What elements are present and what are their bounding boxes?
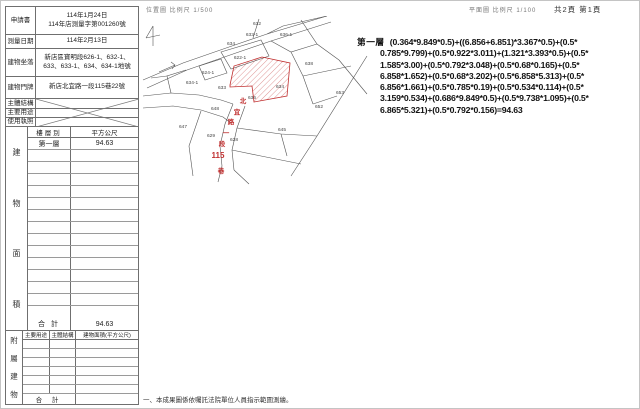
annex-empty-row (23, 376, 138, 385)
annex-header-row: 主要用途 主體結構 建物面積(平方公尺) (23, 331, 138, 340)
area-total-value: 94.63 (71, 318, 138, 330)
parcel-number-label: 647 (179, 124, 187, 130)
street-name-label: 路 (228, 117, 235, 126)
survey-date-value: 114年2月13日 (36, 35, 138, 48)
row-main-structure: 主體結構 (6, 99, 138, 109)
street-name-label: 115 (212, 151, 225, 160)
annex-building-section: 附屬建物 主要用途 主體結構 建物面積(平方公尺) 合 計 (6, 331, 138, 404)
application-label: 申請書 (6, 7, 36, 34)
parcel-number-label: 624-1 (202, 70, 215, 76)
building-location-label: 建物坐落 (6, 49, 36, 76)
row-building-location: 建物坐落 新店區寶明段626-1、632-1、633、633-1、634、634… (6, 49, 138, 77)
annex-use-header: 主要用途 (23, 331, 50, 339)
parcel-number-label: 632 (253, 21, 261, 27)
area-total-row: 合 計 94.63 (28, 318, 138, 330)
area-empty-row (28, 234, 138, 246)
main-use-value (36, 109, 138, 117)
area-empty-row (28, 186, 138, 198)
area-empty-row (28, 306, 138, 318)
area-row-first-floor: 第一層 94.63 (28, 138, 138, 150)
street-name-label: 段 (219, 139, 226, 148)
parcel-number-label: 622-1 (234, 55, 247, 61)
main-use-label: 主要用途 (6, 109, 36, 117)
area-empty-row (28, 270, 138, 282)
parcel-number-label: 652 (315, 104, 323, 110)
annex-empty-row (23, 349, 138, 358)
area-total-label: 合 計 (28, 318, 71, 330)
floor-column-header: 樓層別 (28, 127, 71, 137)
calc-line: 0.785*9.799)+(0.5*0.922*3.011)+(1.321*3.… (357, 48, 640, 59)
row-use-license: 使用執照 (6, 118, 138, 127)
calc-line: 6.856*1.661)+(0.5*0.785*0.19)+(0.5*0.534… (357, 82, 640, 93)
building-area-table: 樓層別 平方公尺 第一層 94.63 合 計 94.63 (28, 127, 138, 330)
annex-vertical-label: 附屬建物 (6, 331, 23, 404)
parcel-number-label: 636 (248, 95, 256, 101)
row-building-address: 建物門牌 新店北宜路一段115巷22號 (6, 77, 138, 99)
annex-area-header: 建物面積(平方公尺) (76, 331, 138, 339)
calc-line: 6.865*5.321)+(0.5*0.792*0.156)=94.63 (357, 105, 640, 116)
main-structure-label: 主體結構 (6, 99, 36, 108)
survey-date-label: 測量日期 (6, 35, 36, 48)
application-date: 114年1月24日 (67, 12, 108, 21)
calc-line: 3.159*0.534)+(0.686*9.849*0.5)+(0.5*9.73… (357, 93, 640, 104)
parcel-number-label: 645 (278, 127, 286, 133)
parcel-number-label: 648 (211, 106, 219, 112)
use-license-value (36, 118, 138, 126)
survey-result-document: 申請書 114年1月24日 114年店測量字第001260號 測量日期 114年… (0, 0, 640, 409)
calc-line: 第一層 (0.364*9.849*0.5)+((6.856+6.851)*3.3… (357, 37, 640, 48)
area-empty-row (28, 174, 138, 186)
annex-empty-rows (23, 340, 138, 394)
application-value: 114年1月24日 114年店測量字第001260號 (36, 7, 138, 34)
area-empty-row (28, 210, 138, 222)
parcel-number-label: 638 (305, 61, 313, 67)
application-number: 114年店測量字第001260號 (48, 21, 126, 30)
street-name-label: 宜 (234, 107, 241, 116)
building-area-vertical-label: 建物面積 (6, 127, 28, 330)
area-empty-row (28, 162, 138, 174)
first-floor-label: 第一層 (28, 138, 71, 149)
street-name-label: 北 (240, 96, 247, 105)
building-footprint-hatched (230, 57, 290, 102)
footnote: 一、本成果圖係依囑託法院單位人員指示範圍測繪。 (143, 394, 293, 404)
building-area-section: 建物面積 樓層別 平方公尺 第一層 94.63 合 計 94.63 (6, 127, 138, 331)
building-location-value: 新店區寶明段626-1、632-1、633、633-1、634、634-1地號 (36, 49, 138, 76)
main-structure-value (36, 99, 138, 108)
north-arrow-icon (146, 26, 160, 46)
area-empty-row (28, 282, 138, 294)
area-empty-row (28, 246, 138, 258)
street-name-label: 一 (223, 130, 230, 137)
street-name-label: 巷 (217, 166, 225, 175)
annex-structure-header: 主體結構 (50, 331, 76, 339)
floor-plan-scale: 平面圖 比例尺 1/100 (469, 5, 536, 14)
calc-line: 1.585*3.00)+(0.5*0.792*3.048)+(0.5*0.68*… (357, 60, 640, 71)
calc-line: 6.858*1.652)+(0.5*0.68*3.202)+(0.5*6.858… (357, 71, 640, 82)
annex-empty-row (23, 367, 138, 376)
annex-total-row: 合 計 (23, 394, 138, 404)
row-survey-date: 測量日期 114年2月13日 (6, 35, 138, 49)
parcel-number-label: 633-1 (246, 32, 259, 38)
building-address-label: 建物門牌 (6, 77, 36, 98)
location-map-container: 632636-1633-1634622-1638624-1634-1633634… (141, 16, 371, 188)
area-empty-rows (28, 150, 138, 318)
location-map-scale: 位置圖 比例尺 1/500 (146, 5, 213, 14)
building-address-value: 新店北宜路一段115巷22號 (36, 77, 138, 98)
annex-empty-row (23, 385, 138, 394)
parcel-number-label: 653 (336, 90, 344, 96)
use-license-label: 使用執照 (6, 118, 36, 126)
area-empty-row (28, 150, 138, 162)
form-table: 申請書 114年1月24日 114年店測量字第001260號 測量日期 114年… (5, 6, 139, 405)
parcel-number-label: 634-1 (186, 80, 199, 86)
annex-empty-row (23, 358, 138, 367)
row-main-use: 主要用途 (6, 109, 138, 118)
page-indicator: 共2頁 第1頁 (554, 4, 601, 15)
sqm-column-header: 平方公尺 (71, 127, 138, 137)
parcel-number-label: 629 (207, 133, 215, 139)
area-empty-row (28, 198, 138, 210)
annex-total-value (76, 394, 138, 404)
parcel-number-label: 628 (230, 137, 238, 143)
area-calculation-block: 第一層 (0.364*9.849*0.5)+((6.856+6.851)*3.3… (357, 37, 640, 116)
parcel-number-label: 633 (218, 85, 226, 91)
parcel-number-label: 634 (276, 84, 284, 90)
parcel-number-label: 636-1 (280, 32, 293, 38)
area-empty-row (28, 222, 138, 234)
location-map: 632636-1633-1634622-1638624-1634-1633634… (141, 16, 371, 188)
annex-empty-row (23, 340, 138, 349)
row-application: 申請書 114年1月24日 114年店測量字第001260號 (6, 7, 138, 35)
area-empty-row (28, 258, 138, 270)
calc-lines: 第一層 (0.364*9.849*0.5)+((6.856+6.851)*3.3… (357, 37, 640, 116)
parcel-number-label: 634 (227, 41, 235, 47)
area-empty-row (28, 294, 138, 306)
first-floor-area: 94.63 (71, 138, 138, 149)
area-header-row: 樓層別 平方公尺 (28, 127, 138, 138)
annex-table: 主要用途 主體結構 建物面積(平方公尺) 合 計 (23, 331, 138, 404)
annex-total-label: 合 計 (23, 394, 76, 404)
